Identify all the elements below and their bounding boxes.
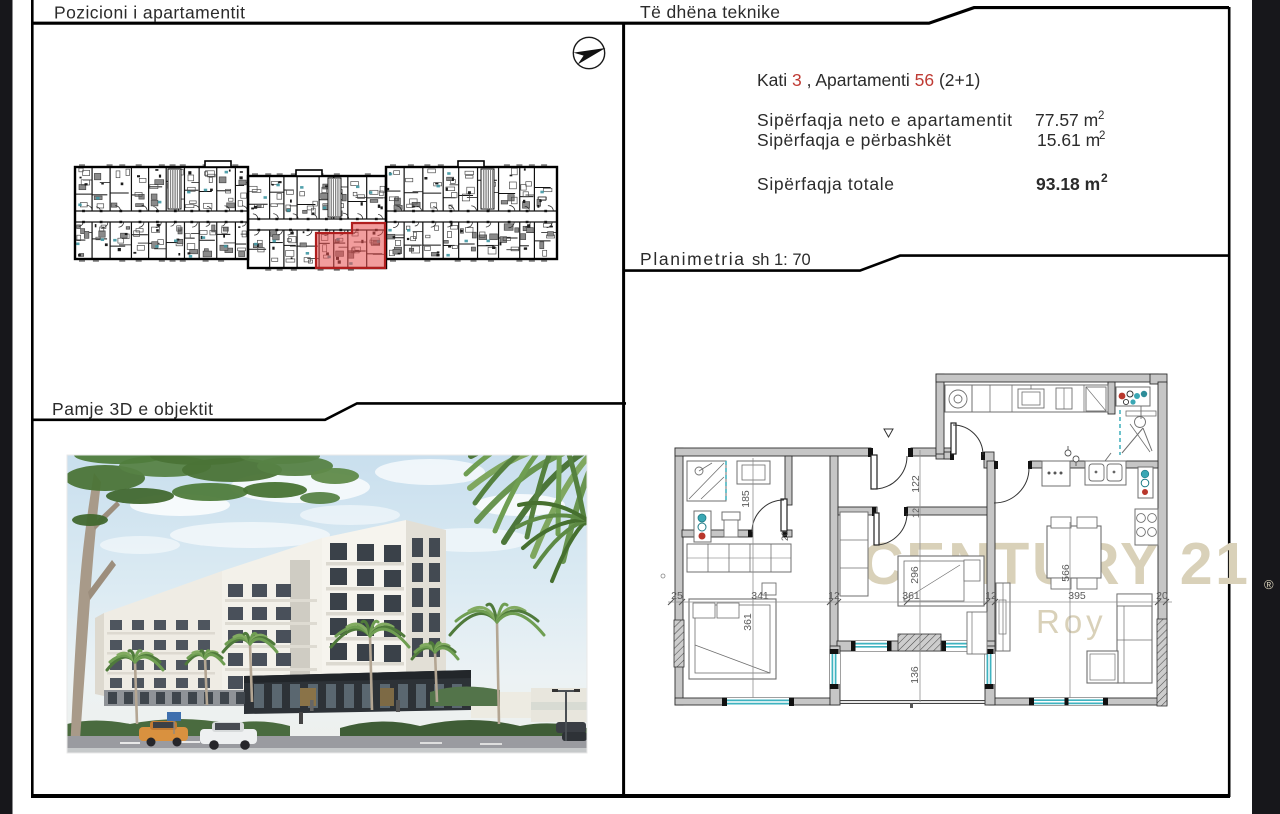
svg-text:93.18 m: 93.18 m [1036, 174, 1100, 194]
svg-text:77.57 m: 77.57 m [1035, 110, 1098, 130]
svg-text:122: 122 [910, 475, 922, 493]
svg-text:25: 25 [671, 590, 683, 602]
svg-text:Sipërfaqja totale: Sipërfaqja totale [757, 174, 894, 194]
svg-text:395: 395 [1068, 590, 1086, 602]
svg-text:566: 566 [1060, 564, 1072, 582]
svg-text:20: 20 [1156, 590, 1168, 602]
svg-text:20: 20 [780, 531, 790, 541]
svg-text:136: 136 [909, 666, 921, 684]
svg-text:sh 1: 70: sh 1: 70 [752, 251, 811, 269]
svg-text:Sipërfaqja neto e apartamentit: Sipërfaqja neto e apartamentit [757, 110, 1012, 130]
svg-text:12: 12 [985, 590, 997, 602]
svg-text:185: 185 [740, 490, 752, 508]
svg-text:®: ® [1264, 577, 1274, 592]
svg-text:2: 2 [1101, 171, 1108, 185]
svg-text:Pozicioni i apartamentit: Pozicioni i apartamentit [54, 3, 245, 23]
svg-text:Të dhëna teknike: Të dhëna teknike [640, 2, 780, 22]
svg-text:15.61 m: 15.61 m [1037, 130, 1100, 150]
svg-text:Planimetria: Planimetria [640, 249, 744, 269]
svg-text:361: 361 [742, 613, 754, 631]
svg-text:2: 2 [1098, 110, 1104, 122]
svg-text:12: 12 [828, 590, 840, 602]
svg-text:Roy: Roy [1036, 603, 1107, 640]
svg-text:361: 361 [902, 590, 920, 602]
svg-text:Kati 3 , Apartamenti 56 (2+1): Kati 3 , Apartamenti 56 (2+1) [757, 70, 980, 90]
svg-text:296: 296 [909, 566, 921, 584]
svg-text:12: 12 [911, 508, 921, 518]
svg-text:Pamje 3D e objektit: Pamje 3D e objektit [52, 399, 213, 419]
svg-text:341: 341 [751, 590, 769, 602]
svg-text:Sipërfaqja e përbashkët: Sipërfaqja e përbashkët [757, 130, 951, 150]
svg-text:2: 2 [1099, 130, 1105, 142]
